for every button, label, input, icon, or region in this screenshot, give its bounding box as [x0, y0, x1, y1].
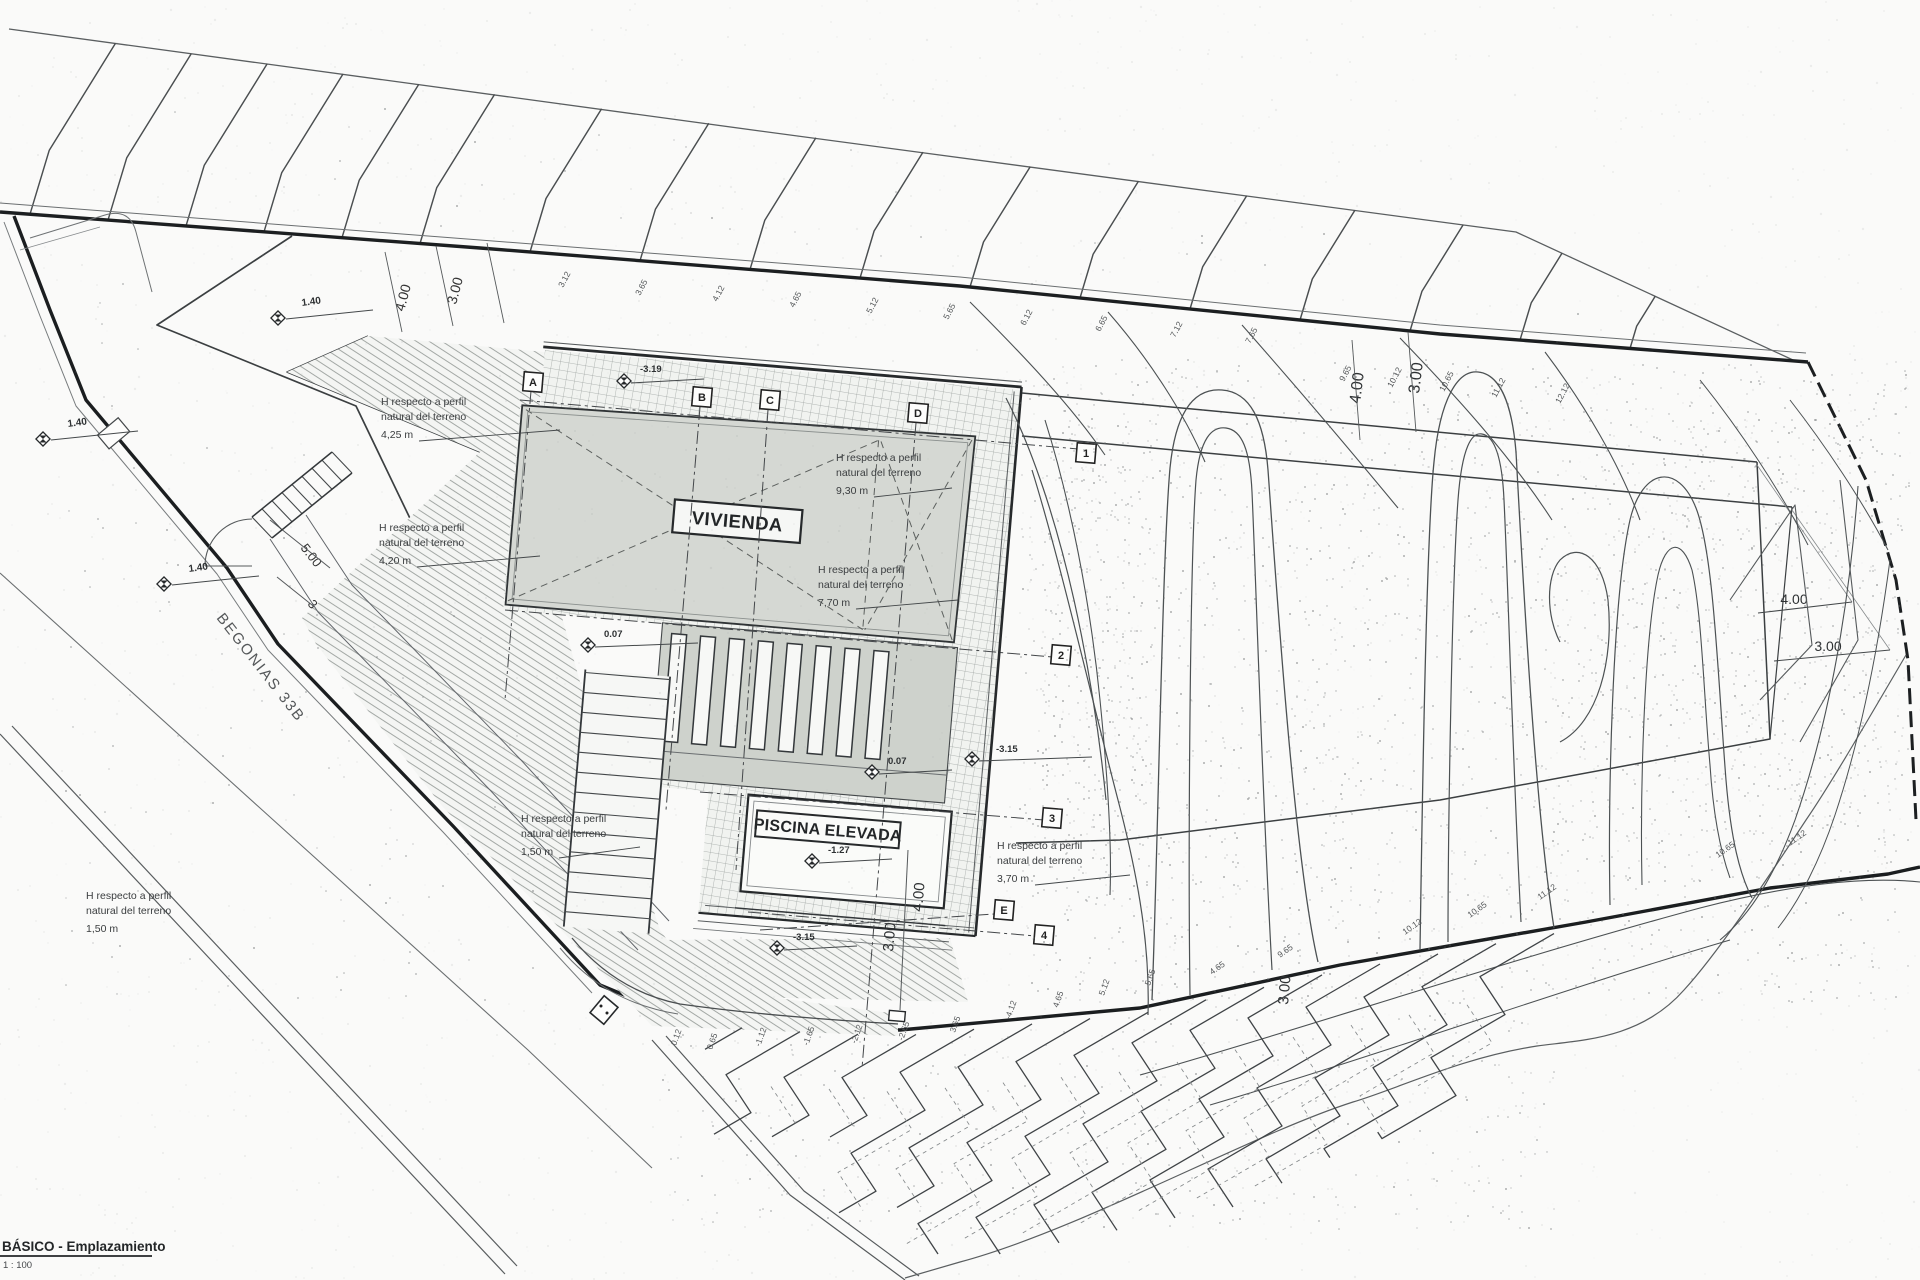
svg-text:H respecto a perfil: H respecto a perfil: [818, 564, 903, 576]
svg-text:H respecto a perfil: H respecto a perfil: [86, 890, 171, 902]
svg-text:D: D: [914, 408, 922, 420]
svg-text:2: 2: [1058, 650, 1064, 662]
svg-text:natural del terreno: natural del terreno: [86, 905, 171, 917]
svg-text:0.07: 0.07: [604, 629, 623, 640]
svg-text:B: B: [698, 392, 706, 404]
svg-text:H respecto a perfil: H respecto a perfil: [381, 396, 466, 408]
svg-text:4: 4: [1041, 930, 1048, 942]
svg-text:1,50 m: 1,50 m: [521, 846, 553, 858]
svg-text:-3.19: -3.19: [640, 364, 662, 375]
svg-text:4.00: 4.00: [909, 882, 928, 913]
svg-text:1 : 100: 1 : 100: [3, 1260, 32, 1271]
svg-text:4,25 m: 4,25 m: [381, 429, 413, 441]
svg-text:natural del terreno: natural del terreno: [379, 537, 464, 549]
svg-text:natural del terreno: natural del terreno: [836, 467, 921, 479]
svg-text:H respecto a perfil: H respecto a perfil: [379, 522, 464, 534]
svg-text:0.07: 0.07: [888, 756, 907, 767]
svg-text:BÁSICO - Emplazamiento: BÁSICO - Emplazamiento: [2, 1239, 166, 1254]
svg-text:A: A: [529, 377, 537, 389]
svg-text:-3.15: -3.15: [793, 932, 815, 943]
svg-text:H respecto a perfil: H respecto a perfil: [836, 452, 921, 464]
svg-text:7,70 m: 7,70 m: [818, 597, 850, 609]
svg-text:-1.27: -1.27: [828, 845, 850, 856]
svg-text:3: 3: [1049, 813, 1055, 825]
svg-text:4,20 m: 4,20 m: [379, 555, 411, 567]
svg-text:1,50 m: 1,50 m: [86, 923, 118, 935]
svg-text:E: E: [1000, 905, 1007, 917]
svg-text:3,70 m: 3,70 m: [997, 873, 1029, 885]
svg-text:natural del terreno: natural del terreno: [521, 828, 606, 840]
svg-text:9,30 m: 9,30 m: [836, 485, 868, 497]
svg-text:natural del terreno: natural del terreno: [818, 579, 903, 591]
svg-text:-3.15: -3.15: [996, 744, 1018, 755]
svg-text:natural del terreno: natural del terreno: [381, 411, 466, 423]
svg-text:H respecto a perfil: H respecto a perfil: [521, 813, 606, 825]
svg-text:C: C: [766, 395, 774, 407]
svg-text:natural del terreno: natural del terreno: [997, 855, 1082, 867]
svg-text:3.00: 3.00: [880, 922, 899, 953]
svg-text:4.00: 4.00: [1780, 591, 1807, 607]
